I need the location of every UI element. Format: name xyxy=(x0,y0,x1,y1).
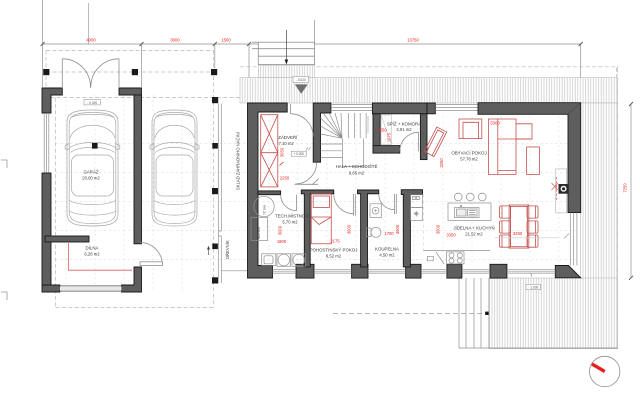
svg-text:5,70 m2: 5,70 m2 xyxy=(282,220,298,225)
svg-text:POHOSTINSKÝ POKOJ: POHOSTINSKÝ POKOJ xyxy=(310,248,358,253)
svg-text:ZÁDVEŘÍ: ZÁDVEŘÍ xyxy=(278,135,298,140)
svg-text:SPÍŽ + KOMORA: SPÍŽ + KOMORA xyxy=(387,121,421,126)
svg-text:1900: 1900 xyxy=(277,239,287,244)
svg-text:6,28 m2: 6,28 m2 xyxy=(84,252,100,257)
svg-text:2,91 m2: 2,91 m2 xyxy=(396,127,412,132)
svg-text:4,50 m2: 4,50 m2 xyxy=(379,253,395,258)
svg-text:21,52 m2: 21,52 m2 xyxy=(465,231,483,236)
svg-text:AKU 500l: AKU 500l xyxy=(257,227,261,239)
svg-text:3050: 3050 xyxy=(280,147,285,157)
svg-text:1850: 1850 xyxy=(377,128,387,133)
svg-text:3350: 3350 xyxy=(446,233,456,238)
svg-text:3000: 3000 xyxy=(436,224,441,234)
svg-text:7250: 7250 xyxy=(623,183,628,193)
svg-text:3000: 3000 xyxy=(170,38,180,43)
svg-text:9,65 m2: 9,65 m2 xyxy=(349,171,365,176)
svg-text:HALA + SCHODIŠTĚ: HALA + SCHODIŠTĚ xyxy=(336,164,378,169)
svg-text:3000: 3000 xyxy=(395,224,400,234)
svg-text:- 1,030: - 1,030 xyxy=(528,286,538,290)
svg-text:3000: 3000 xyxy=(278,225,283,235)
svg-text:1575: 1575 xyxy=(387,132,392,142)
svg-text:2250: 2250 xyxy=(280,176,290,181)
svg-text:DŘEVNÍK: DŘEVNÍK xyxy=(225,240,230,259)
svg-text:TECH.MÍSTNOST: TECH.MÍSTNOST xyxy=(275,214,311,219)
svg-text:OBÝVACÍ POKOJ: OBÝVACÍ POKOJ xyxy=(451,151,486,156)
svg-text:20,00 m2: 20,00 m2 xyxy=(82,176,100,181)
svg-text:3000: 3000 xyxy=(347,224,352,234)
svg-text:6,52 m2: 6,52 m2 xyxy=(326,254,342,259)
svg-text:1700: 1700 xyxy=(384,231,394,236)
svg-text:+ 0,000: + 0,000 xyxy=(293,152,304,156)
svg-text:- 0,020: - 0,020 xyxy=(87,101,97,105)
svg-text:TČ 190l: TČ 190l xyxy=(262,205,267,215)
svg-text:57,78 m2: 57,78 m2 xyxy=(460,157,478,162)
svg-text:- 0,020: - 0,020 xyxy=(296,78,306,82)
svg-text:3250: 3250 xyxy=(439,158,444,168)
svg-text:3290: 3290 xyxy=(513,231,523,236)
svg-text:JÍDELNA + KUCHYŇ: JÍDELNA + KUCHYŇ xyxy=(453,226,494,231)
svg-text:4000: 4000 xyxy=(86,38,96,43)
svg-text:1500: 1500 xyxy=(221,38,231,43)
svg-text:2175: 2175 xyxy=(330,239,340,244)
svg-text:13750: 13750 xyxy=(407,38,419,43)
svg-text:GARÁŽ: GARÁŽ xyxy=(83,170,98,175)
svg-text:7,10 m2: 7,10 m2 xyxy=(279,141,295,146)
svg-text:KOUPELNA: KOUPELNA xyxy=(375,247,399,252)
svg-text:DÍLNA: DÍLNA xyxy=(86,246,99,251)
svg-text:5300: 5300 xyxy=(490,121,500,126)
svg-text:SKLAD ZAHRADNÍHO NÁČINÍ: SKLAD ZAHRADNÍHO NÁČINÍ xyxy=(236,131,241,190)
